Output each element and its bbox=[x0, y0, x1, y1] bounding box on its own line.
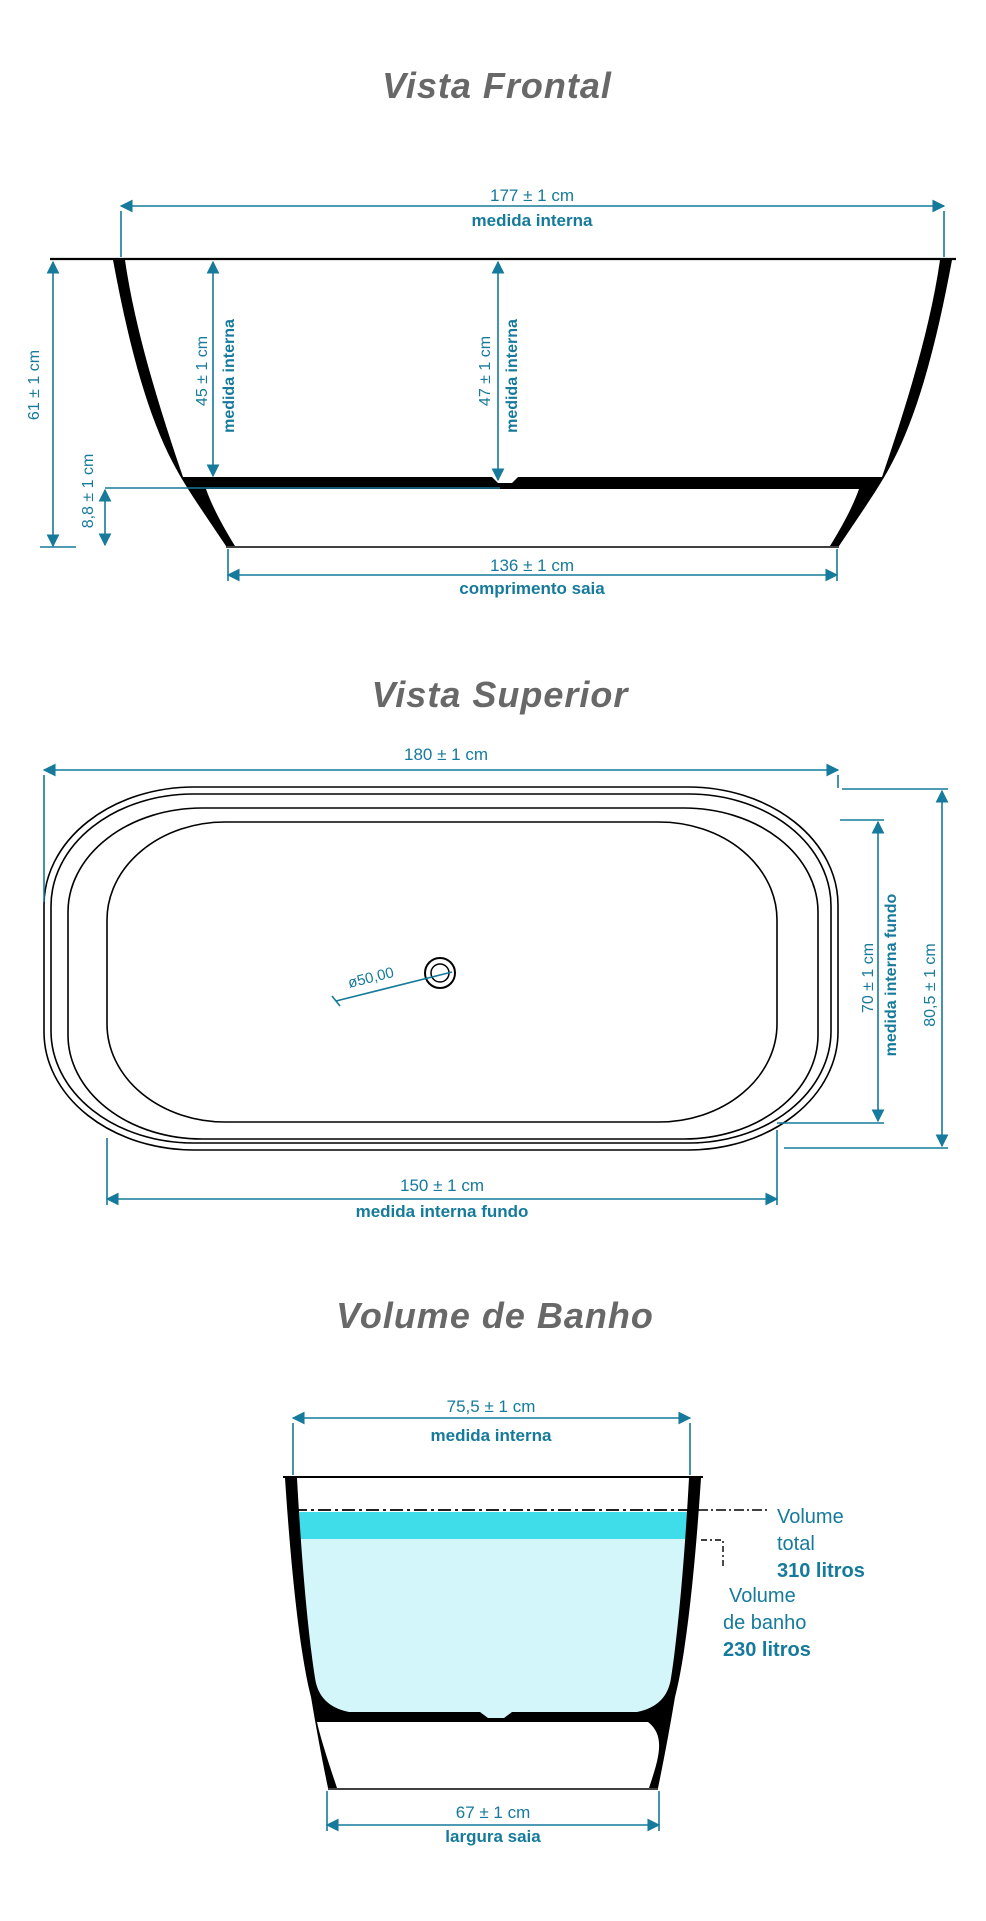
volume-total-line1: Volume bbox=[777, 1504, 865, 1531]
volume-bath-line2: de banho bbox=[723, 1610, 811, 1637]
top-overall-width-dimension: 80,5 ± 1 cm bbox=[922, 943, 940, 1026]
water-bath-volume-fill bbox=[299, 1539, 688, 1718]
front-depth-left-label: medida interna bbox=[221, 319, 239, 433]
volume-total-annotation: Volume total 310 litros bbox=[777, 1504, 865, 1585]
front-depth-center-dimension: 47 ± 1 cm bbox=[477, 336, 495, 406]
front-view-title: Vista Frontal bbox=[382, 65, 612, 107]
front-width-dimension: 177 ± 1 cm bbox=[490, 186, 574, 206]
volume-skirt-width-label: largura saia bbox=[445, 1827, 540, 1847]
front-skirt-dimension: 136 ± 1 cm bbox=[490, 556, 574, 576]
volume-bath-leader bbox=[701, 1540, 723, 1569]
volume-inner-width-label: medida interna bbox=[431, 1426, 552, 1446]
volume-inner-width-dimension: 75,5 ± 1 cm bbox=[447, 1397, 536, 1417]
top-floor-width-dimension: 70 ± 1 cm bbox=[860, 943, 878, 1013]
volume-bath-value: 230 litros bbox=[723, 1637, 811, 1664]
volume-bath-line1: Volume bbox=[723, 1583, 811, 1610]
front-skirt-label: comprimento saia bbox=[459, 579, 605, 599]
top-floor-length-dimension: 150 ± 1 cm bbox=[400, 1176, 484, 1196]
front-width-label: medida interna bbox=[472, 211, 593, 231]
volume-view-leaders bbox=[698, 1510, 770, 1569]
top-length-dimension: 180 ± 1 cm bbox=[404, 745, 488, 765]
front-depth-center-label: medida interna bbox=[504, 319, 522, 433]
top-floor-width-label: medida interna fundo bbox=[883, 894, 901, 1057]
technical-drawing-bathtub: Vista Frontal 177 ± 1 cm medida interna … bbox=[0, 0, 986, 1921]
volume-view-water bbox=[296, 1512, 691, 1718]
water-total-volume-band bbox=[296, 1512, 691, 1539]
volume-total-line2: total bbox=[777, 1531, 865, 1558]
front-height-dimension: 61 ± 1 cm bbox=[26, 350, 44, 420]
top-view-title: Vista Superior bbox=[372, 674, 629, 716]
top-floor-length-label: medida interna fundo bbox=[356, 1202, 529, 1222]
front-base-height-dimension: 8,8 ± 1 cm bbox=[80, 454, 98, 529]
volume-bath-annotation: Volume de banho 230 litros bbox=[723, 1583, 811, 1664]
volume-skirt-width-dimension: 67 ± 1 cm bbox=[456, 1803, 531, 1823]
volume-view-title: Volume de Banho bbox=[336, 1295, 654, 1337]
front-view-tub-outline bbox=[50, 259, 956, 547]
volume-total-value: 310 litros bbox=[777, 1558, 865, 1585]
front-depth-left-dimension: 45 ± 1 cm bbox=[194, 336, 212, 406]
top-view-tub-outline bbox=[44, 787, 838, 1150]
drawing-geometry bbox=[0, 0, 986, 1921]
